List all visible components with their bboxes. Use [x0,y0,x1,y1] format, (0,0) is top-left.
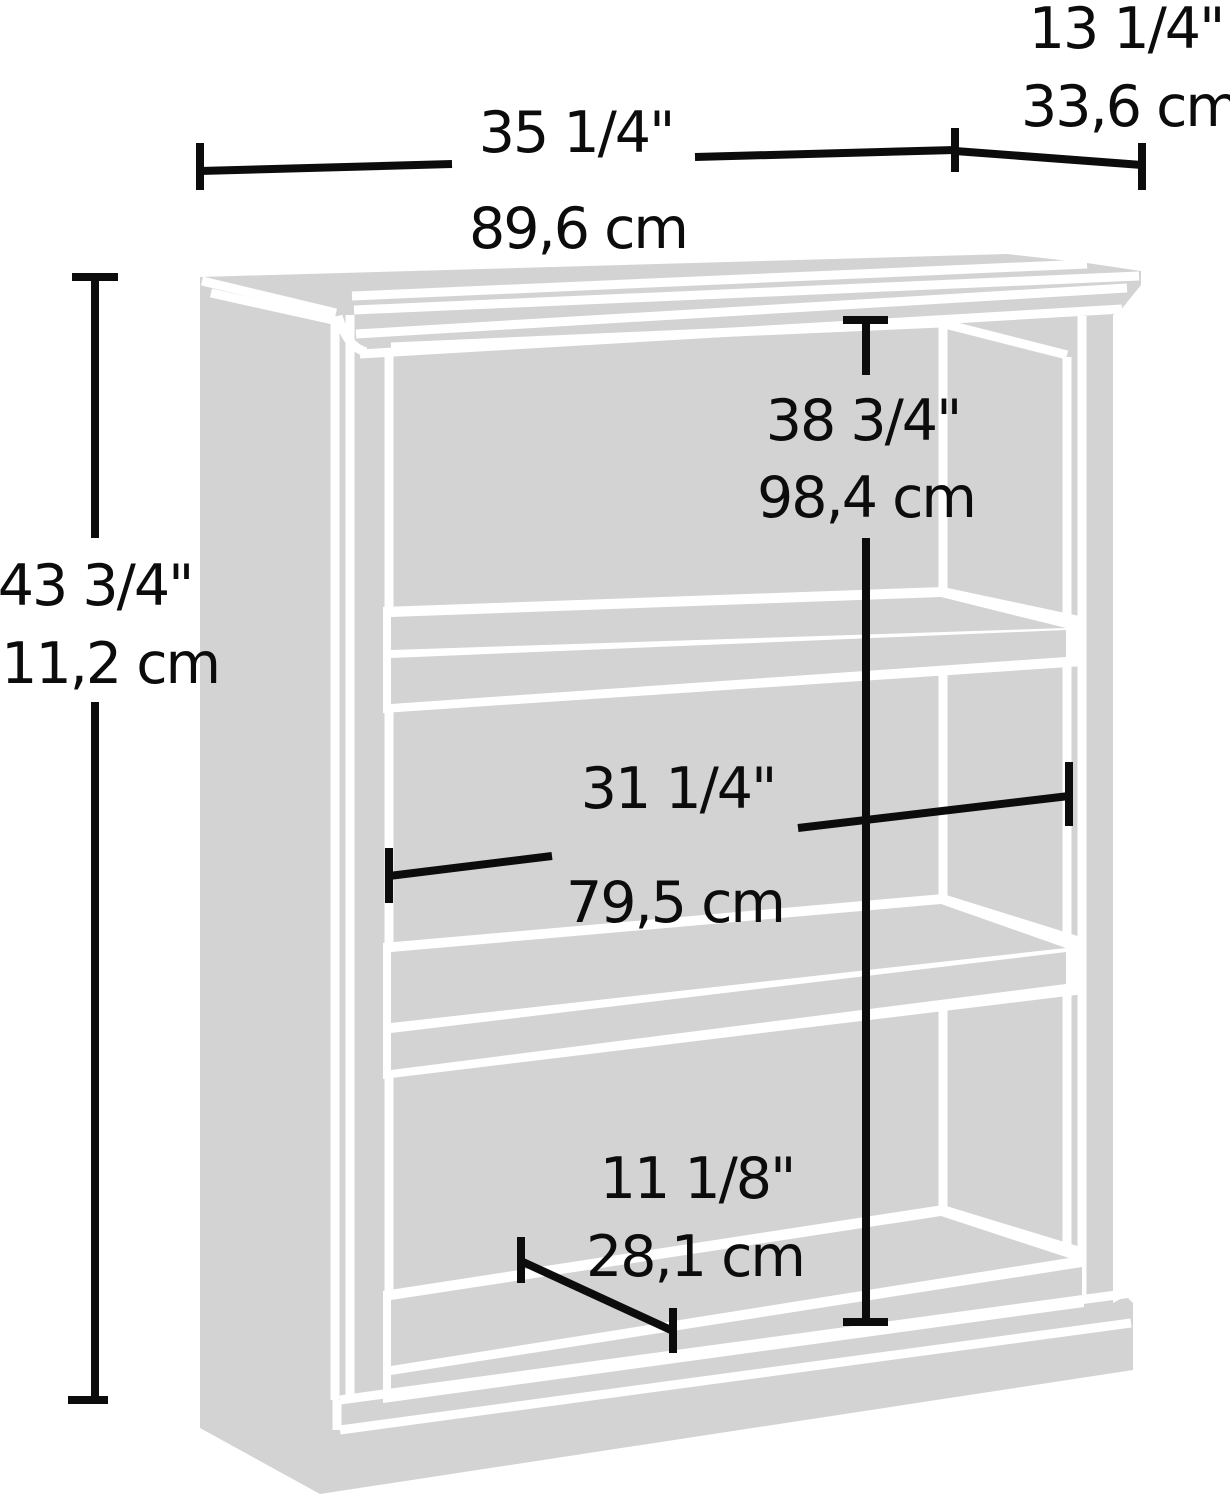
shelf-depth-inches-label: 11 1/8" [600,1146,795,1212]
interior-width-inches-label: 31 1/4" [581,756,776,822]
interior-height-inches-label: 38 3/4" [766,388,961,454]
interior-width-cm-label: 79,5 cm [566,870,784,936]
overall-depth-cm-label: 33,6 cm [1021,74,1230,140]
shelf-depth-cm-label: 28,1 cm [586,1224,804,1290]
dimension-diagram: 35 1/4" 89,6 cm 13 1/4" 33,6 cm 43 3/4" … [0,0,1230,1500]
overall-width-inches-label: 35 1/4" [479,100,674,166]
interior-height-cm-label: 98,4 cm [757,465,975,531]
overall-height-cm-label: 111,2 cm [0,631,219,697]
overall-width-cm-label: 89,6 cm [469,196,687,262]
overall-height-inches-label: 43 3/4" [0,553,192,619]
dimension-overall-depth-lines [955,143,1142,190]
overall-depth-inches-label: 13 1/4" [1029,0,1224,62]
dimension-overall-height-lines [68,277,118,1400]
